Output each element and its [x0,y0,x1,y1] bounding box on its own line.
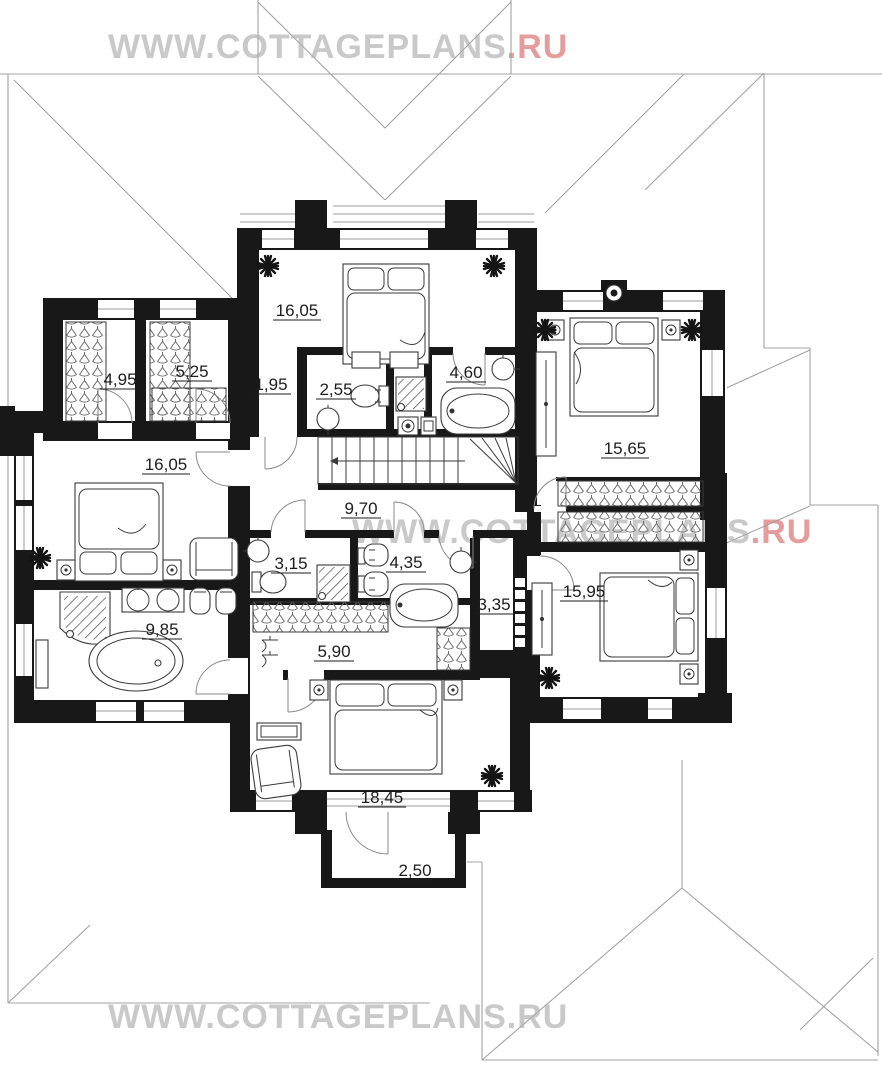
room-area-label: 9,85 [145,620,178,639]
window [98,300,134,318]
room-area-label: 15,95 [563,582,606,601]
bathtub-icon [390,584,458,627]
window [648,699,672,719]
dresser-icon [532,583,552,655]
room-area-label: 18,45 [361,788,404,807]
room-area-label: 16,05 [276,301,319,320]
window [707,588,725,638]
plant-icon [484,256,504,276]
bathtub-icon [441,388,515,434]
washer-icon [398,417,436,435]
window [702,350,723,396]
shower-icon [317,565,350,602]
bed-icon [57,483,181,581]
toilet-icon [252,571,286,593]
bidet-icon [358,572,388,596]
window [16,456,32,500]
hanger-strip [66,322,106,421]
window [478,792,514,810]
window [340,230,428,248]
plant-icon [482,766,502,786]
toilet-icon [351,385,389,407]
bed-icon [343,264,429,368]
room-area-label: 3,35 [477,595,510,614]
plant-icon [539,668,559,688]
bathtub-icon [89,631,183,691]
vent-icon [606,285,622,301]
bidet-icon [216,588,236,614]
hanger-strip [253,602,388,632]
room-area-label: 4,60 [449,363,482,382]
bench-icon [36,640,48,688]
window [563,699,601,719]
room-area-label: 15,65 [604,439,647,458]
window [262,230,294,248]
hanger-strip [558,481,703,506]
hanger-strip [437,628,470,670]
plant-icon [258,256,278,276]
watermark-top: WWW.COTTAGEPLANS.RU [108,28,568,66]
room-area-label: 4,35 [389,553,422,572]
toilet-icon [190,588,210,614]
room-area-label: 5,25 [175,362,208,381]
floor-plan-page: 16,05 4,95 5,25 1,95 2,55 4,60 15,65 16,… [0,0,882,1069]
room-area-label: 5,90 [317,642,350,661]
sink-icon [122,587,184,612]
plant-icon [30,548,50,568]
watermark-middle: WWW.COTTAGEPLANS.RU [352,513,812,551]
tv-stand-icon [257,723,301,740]
window [476,230,508,248]
floor-plan-canvas: 16,05 4,95 5,25 1,95 2,55 4,60 15,65 16,… [0,0,882,1069]
room-area-label: 1,95 [254,375,287,394]
window [663,292,703,310]
window [144,702,184,721]
window [16,506,32,550]
bed-icon [310,680,462,774]
armchair-icon [190,538,238,580]
room-area-label: 4,95 [103,370,136,389]
room-area-label: 16,05 [145,455,188,474]
room-area-label: 3,15 [274,554,307,573]
room-area-label: 2,50 [398,861,431,880]
window [96,702,136,721]
shower-icon [60,592,110,644]
plant-icon [682,320,702,340]
hanger-strip [152,388,226,421]
shower-icon [396,377,426,411]
watermark-bottom: WWW.COTTAGEPLANS.RU [108,998,568,1036]
armchair-icon [250,744,303,800]
dresser-icon [536,352,556,456]
room-area-label: 2,55 [319,380,352,399]
plant-icon [535,320,555,340]
window [16,624,32,676]
window [563,292,603,310]
window [160,300,196,318]
